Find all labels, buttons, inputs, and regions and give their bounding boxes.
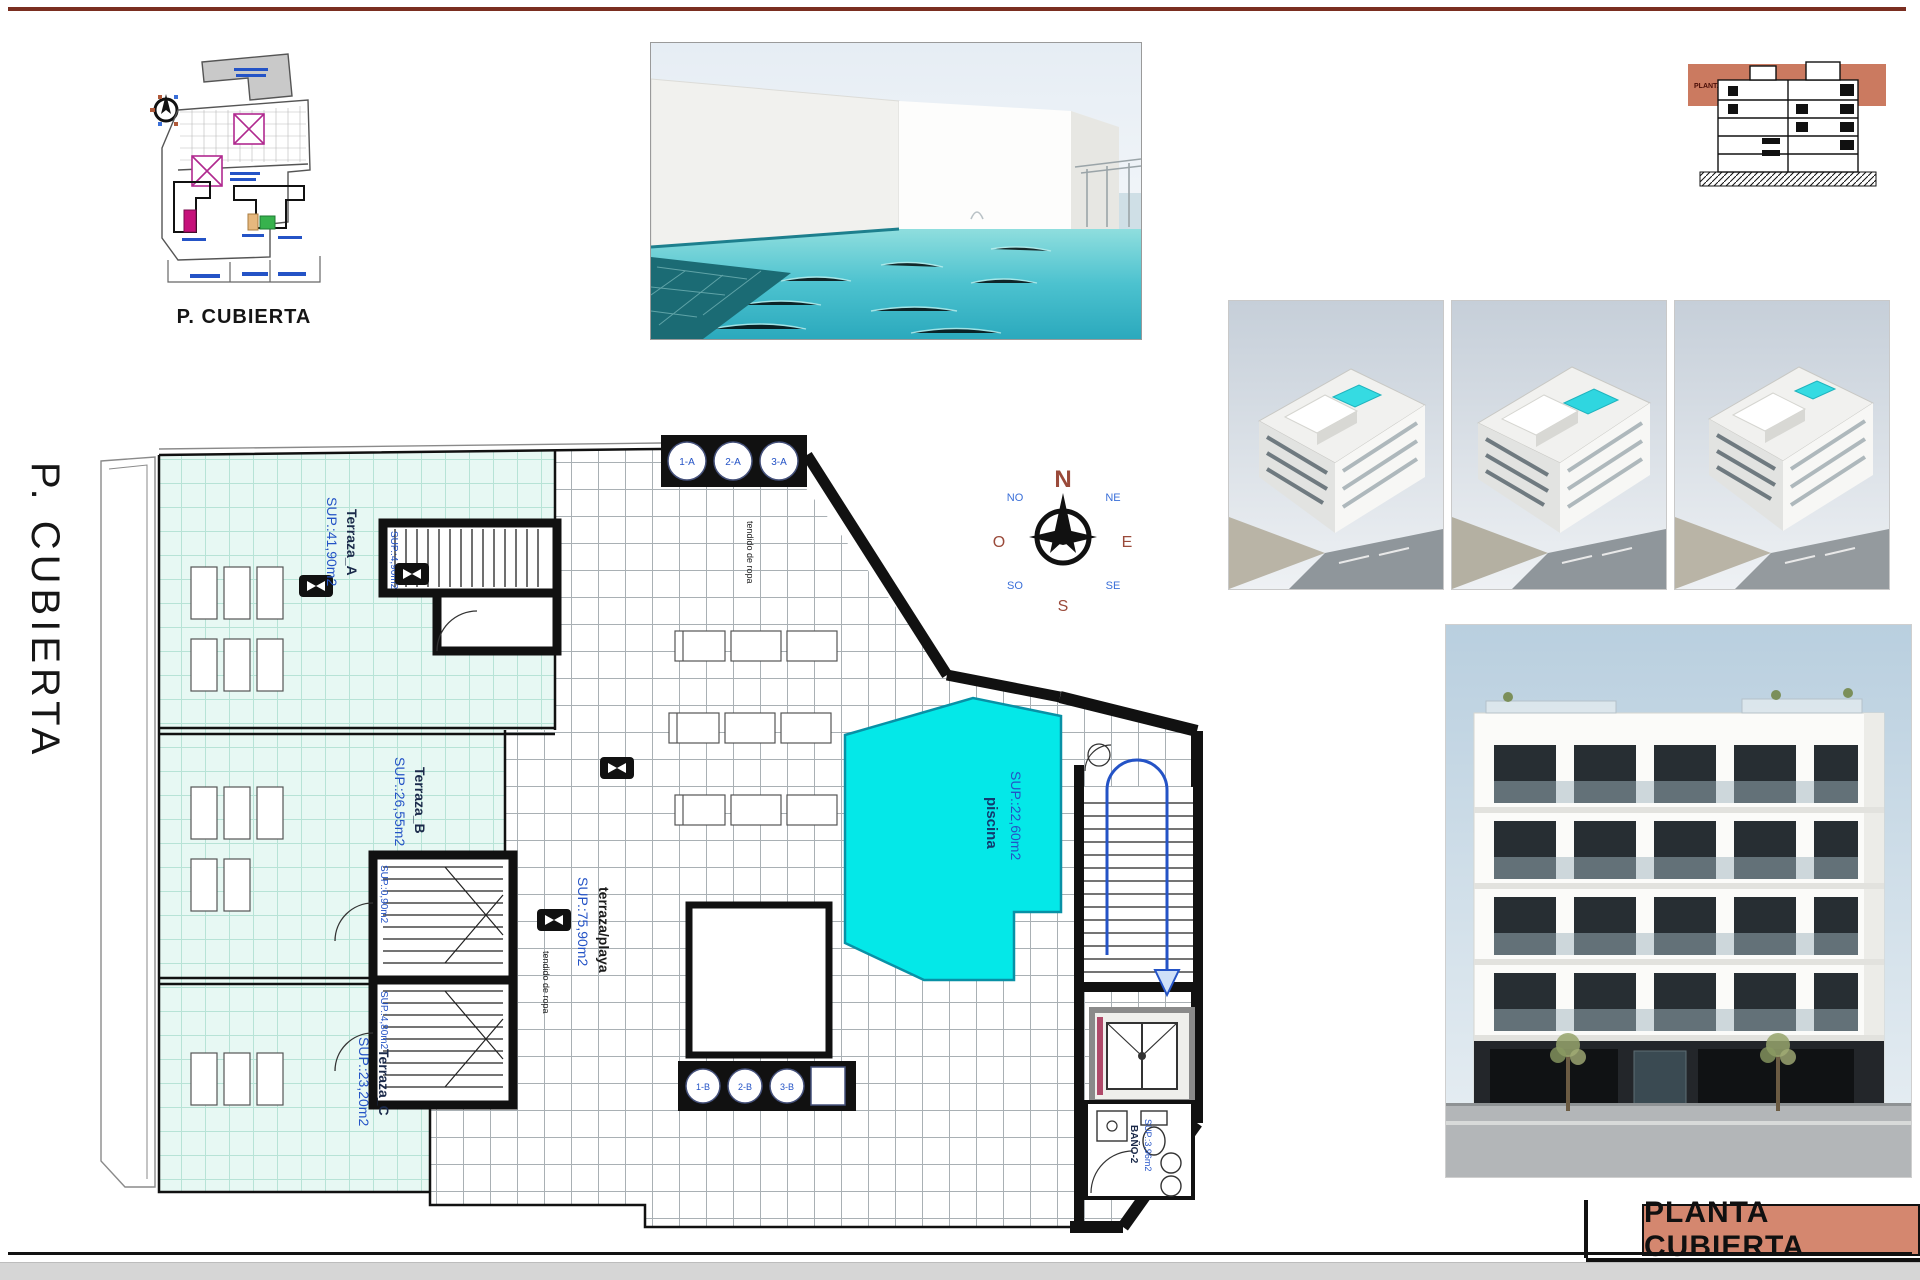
aerial-render-3 [1674, 300, 1890, 590]
left-wall [651, 79, 899, 247]
drawing-sheet: P. CUBIERTA [0, 0, 1920, 1280]
skylight-label: 1-A [679, 457, 695, 468]
compass-e: E [1122, 534, 1133, 551]
stair-area-label: SUP.:4,80m2 [378, 991, 389, 1050]
site-color-patches [184, 210, 275, 232]
compass-rose: N S E O NO NE SO SE [993, 466, 1133, 615]
terrace-a-area: SUP.:41,90m2 [324, 497, 340, 586]
skylight-label: 2-B [738, 1082, 752, 1092]
stair-area-label: SUP.:0,90m2 [378, 865, 389, 924]
terrace-b-name: Terraza_B [412, 767, 428, 834]
deck-area: SUP.:75,90m2 [575, 877, 591, 966]
section-drawing: PLANTA CUBIERTA [1688, 38, 1886, 196]
site-plan-caption: P. CUBIERTA [138, 306, 350, 329]
clothesline-label: tendido de ropa [745, 521, 755, 584]
compass-nw: NO [1007, 492, 1024, 504]
compass-n: N [1054, 466, 1071, 493]
skylight-label: 2-A [725, 457, 741, 468]
sunloungers-deck [669, 631, 837, 825]
compass-w: O [993, 534, 1005, 551]
compass-s: S [1058, 598, 1069, 615]
skylight-band-bottom: 1-B 2-B 3-B [678, 1061, 856, 1111]
pool-render-image [650, 42, 1142, 340]
facade-render-image [1445, 624, 1912, 1178]
street [1446, 1103, 1911, 1177]
deck-name: terraza/playa [596, 887, 612, 973]
terrace-c-name: Terraza_C [376, 1049, 392, 1116]
bottom-rule [8, 1252, 1912, 1255]
roof-opening [689, 905, 829, 1055]
elevator [1092, 1010, 1192, 1102]
pool-area-label: SUP.:22,60m2 [1008, 771, 1024, 860]
site-plan-thumbnail [138, 52, 350, 304]
title-block-divider [1584, 1200, 1588, 1258]
clothesline-label: tendido de ropa [541, 951, 551, 1014]
sheet-side-title: P. CUBIERTA [22, 462, 67, 759]
skylight-label: 1-B [696, 1082, 710, 1092]
bottom-band [0, 1262, 1920, 1280]
aerial-render-1 [1228, 300, 1444, 590]
skylight-band-top: 1-A 2-A 3-A [661, 435, 807, 487]
bath-name-label: BAÑO-2 [1128, 1125, 1141, 1164]
floor-plan: 1-A 2-A 3-A SUP.:4,90m2 SUP.:0,90m2 [85, 435, 1205, 1235]
aerial-render-2 [1451, 300, 1667, 590]
compass-sw: SO [1007, 580, 1023, 592]
terrace-c-area: SUP.:23,20m2 [356, 1037, 372, 1126]
bathroom: BAÑO-2 SUP.:3,96m2 [1086, 1102, 1193, 1198]
terrace-b-area: SUP.:26,55m2 [392, 757, 408, 846]
top-rule [8, 7, 1906, 11]
ground-floor [1474, 1041, 1884, 1105]
terrace-a-name: Terraza_A [344, 509, 360, 576]
sheet-title-block: PLANTA CUBIERTA [1642, 1204, 1920, 1256]
section-ground-hatch [1700, 172, 1876, 186]
compass-ne: NE [1105, 492, 1120, 504]
pool-name-label: piscina [983, 797, 1000, 849]
skylight-label: 3-A [771, 457, 787, 468]
compass-se: SE [1106, 580, 1121, 592]
skylight-label: 3-B [780, 1082, 794, 1092]
bath-area-label: SUP.:3,96m2 [1143, 1119, 1153, 1171]
parapet-cube-front [899, 101, 1071, 229]
